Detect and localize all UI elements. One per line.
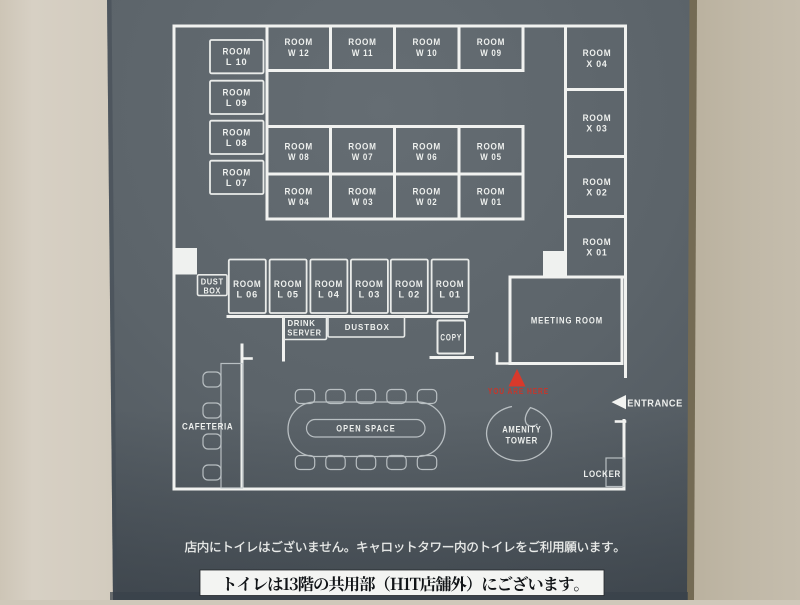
svg-text:ROOM: ROOM	[436, 279, 464, 289]
svg-text:TOWER: TOWER	[506, 436, 539, 446]
svg-text:ROOM: ROOM	[477, 141, 505, 151]
svg-text:ENTRANCE: ENTRANCE	[627, 397, 683, 409]
svg-text:ROOM: ROOM	[223, 127, 251, 137]
svg-text:ROOM: ROOM	[223, 87, 251, 97]
svg-text:L 08: L 08	[226, 138, 248, 148]
svg-text:L 01: L 01	[439, 289, 461, 299]
svg-text:W 01: W 01	[480, 197, 502, 207]
svg-text:X 01: X 01	[586, 247, 607, 257]
svg-text:ROOM: ROOM	[233, 279, 261, 289]
svg-text:ROOM: ROOM	[583, 177, 612, 187]
svg-text:W 04: W 04	[288, 197, 310, 207]
svg-text:L 02: L 02	[399, 289, 421, 299]
svg-text:ROOM: ROOM	[223, 167, 251, 177]
svg-text:L 06: L 06	[237, 289, 259, 299]
svg-text:L 09: L 09	[226, 98, 248, 108]
svg-text:W 12: W 12	[288, 48, 310, 58]
svg-text:L 03: L 03	[359, 289, 381, 299]
svg-text:W 05: W 05	[480, 152, 502, 162]
svg-text:W 09: W 09	[480, 48, 502, 58]
svg-text:L 04: L 04	[318, 289, 340, 299]
svg-text:DUST: DUST	[201, 278, 224, 287]
svg-text:L 10: L 10	[226, 57, 248, 67]
svg-text:W 03: W 03	[352, 197, 374, 207]
svg-text:ROOM: ROOM	[413, 141, 441, 151]
svg-text:LOCKER: LOCKER	[583, 469, 621, 479]
svg-text:ROOM: ROOM	[285, 37, 313, 47]
svg-text:MEETING ROOM: MEETING ROOM	[531, 316, 603, 326]
svg-text:X 04: X 04	[586, 59, 607, 69]
svg-text:ROOM: ROOM	[355, 279, 383, 289]
svg-text:YOU ARE HERE: YOU ARE HERE	[488, 387, 549, 396]
svg-text:ROOM: ROOM	[477, 186, 505, 196]
svg-text:BOX: BOX	[203, 287, 221, 296]
svg-text:ROOM: ROOM	[274, 279, 302, 289]
svg-text:ROOM: ROOM	[477, 37, 505, 47]
svg-text:ROOM: ROOM	[583, 48, 612, 58]
svg-text:W 10: W 10	[416, 48, 438, 58]
svg-text:W 11: W 11	[352, 48, 374, 58]
svg-text:ROOM: ROOM	[348, 37, 376, 47]
svg-text:W 02: W 02	[416, 197, 438, 207]
svg-text:ROOM: ROOM	[413, 37, 441, 47]
svg-text:W 07: W 07	[352, 152, 374, 162]
svg-text:X 03: X 03	[586, 123, 607, 133]
svg-text:L 07: L 07	[226, 178, 248, 188]
svg-text:ROOM: ROOM	[285, 141, 313, 151]
svg-text:ROOM: ROOM	[583, 237, 612, 247]
svg-text:DUSTBOX: DUSTBOX	[345, 322, 390, 332]
svg-text:ROOM: ROOM	[583, 113, 612, 123]
svg-text:SERVER: SERVER	[287, 327, 321, 337]
svg-text:COPY: COPY	[440, 333, 462, 343]
svg-text:ROOM: ROOM	[395, 279, 423, 289]
svg-text:DRINK: DRINK	[288, 318, 316, 328]
svg-text:OPEN SPACE: OPEN SPACE	[336, 424, 396, 435]
svg-text:L 05: L 05	[277, 289, 299, 299]
svg-text:ROOM: ROOM	[315, 279, 343, 289]
svg-text:ROOM: ROOM	[348, 186, 376, 196]
svg-text:W 08: W 08	[288, 152, 310, 162]
svg-text:ROOM: ROOM	[413, 186, 441, 196]
svg-text:AMENITY: AMENITY	[502, 425, 541, 435]
svg-text:X 02: X 02	[586, 187, 607, 197]
svg-text:ROOM: ROOM	[223, 47, 251, 57]
svg-text:ROOM: ROOM	[285, 186, 313, 196]
svg-text:W 06: W 06	[416, 152, 438, 162]
svg-text:CAFETERIA: CAFETERIA	[182, 422, 233, 432]
svg-text:ROOM: ROOM	[348, 141, 376, 151]
